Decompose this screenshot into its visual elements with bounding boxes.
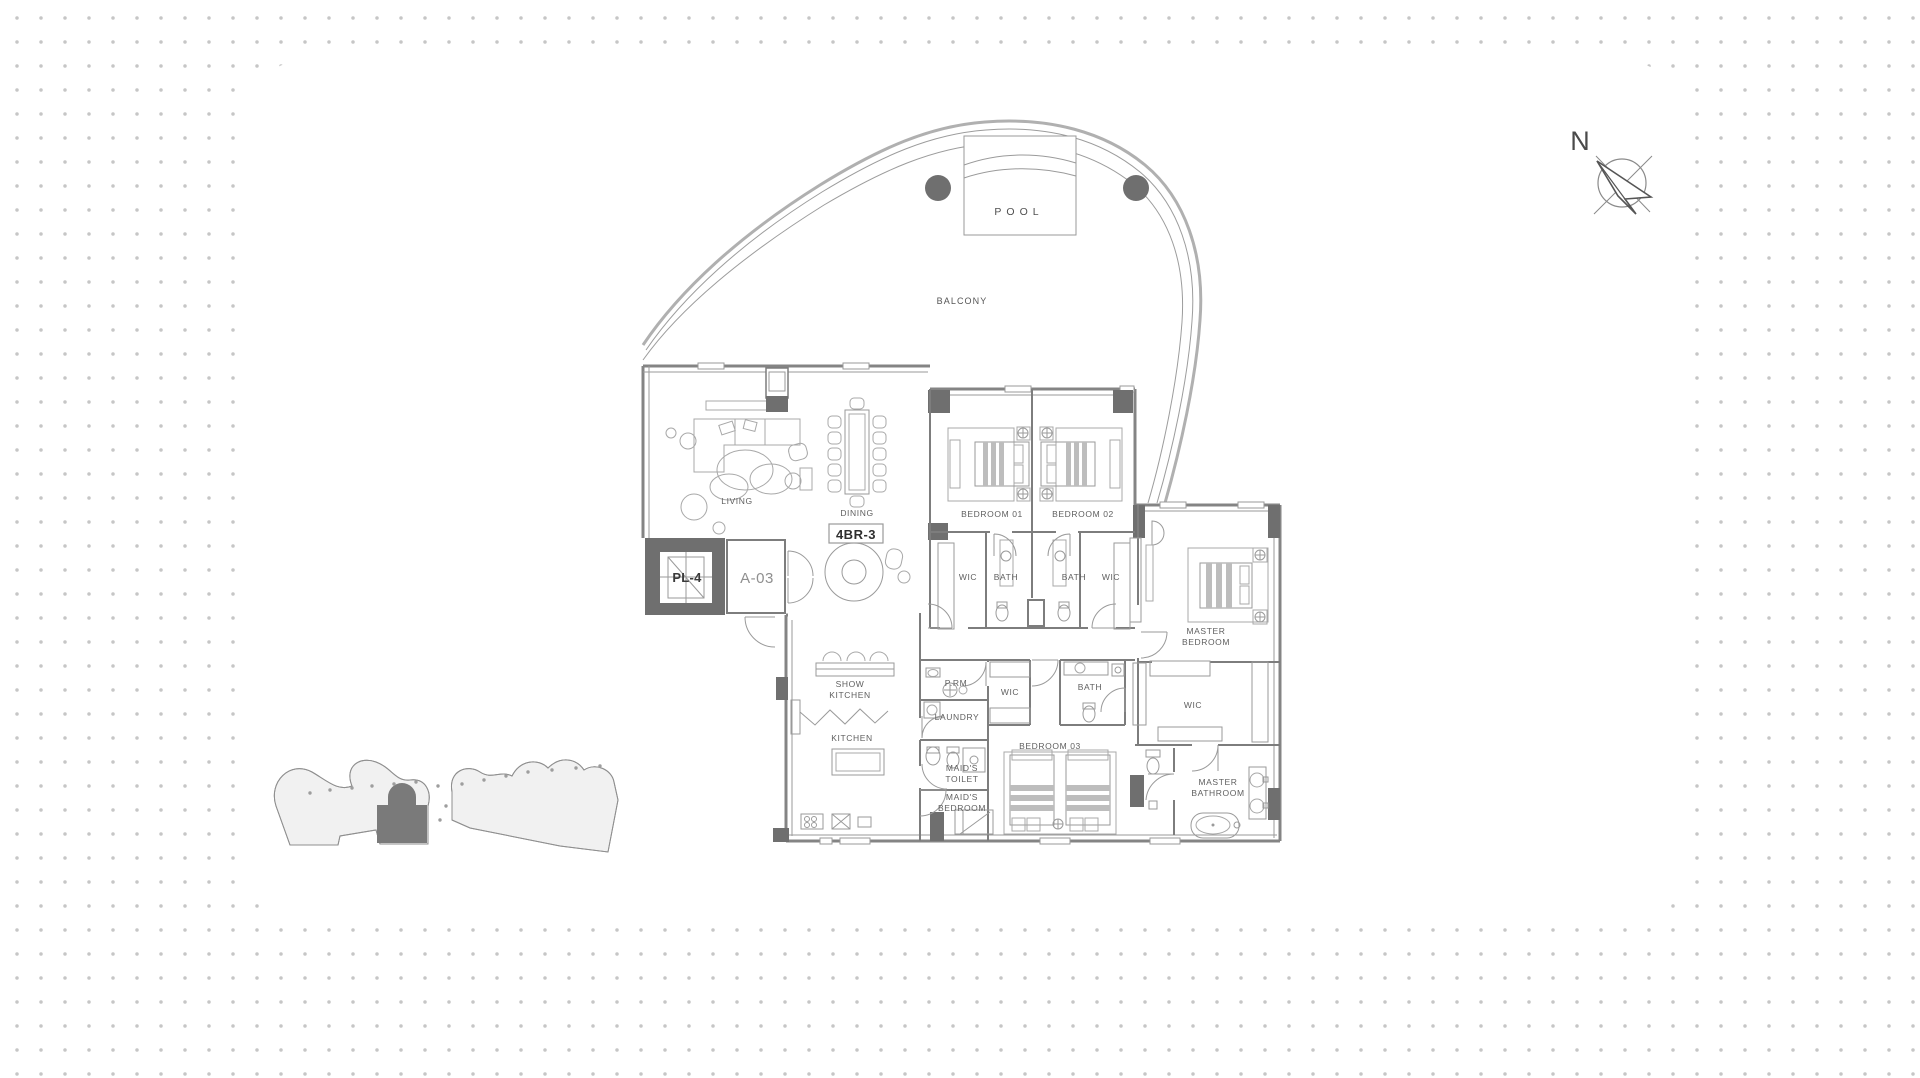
balcony-door (766, 368, 788, 412)
label-dining: DINING (840, 508, 873, 518)
label-wic-bedroom01: WIC (959, 572, 977, 582)
label-bath-bedroom01: BATH (994, 572, 1018, 582)
label-bedroom-02: BEDROOM 02 (1052, 509, 1114, 519)
pool-deck-planter-left (925, 175, 951, 201)
label-maids-toilet: MAID'STOILET (945, 763, 978, 784)
label-unit-badge: 4BR-3 (836, 527, 876, 542)
label-north: N (1570, 126, 1590, 156)
label-master-bathroom: MASTERBATHROOM (1191, 777, 1244, 798)
label-bath-bedroom03: BATH (1078, 682, 1102, 692)
label-master-bedroom: MASTERBEDROOM (1182, 626, 1230, 647)
label-laundry: LAUNDRY (935, 712, 980, 722)
label-bedroom-03: BEDROOM 03 (1019, 741, 1081, 751)
label-wic-master: WIC (1184, 700, 1202, 710)
label-kitchen: KITCHEN (831, 733, 873, 743)
label-living: LIVING (721, 496, 752, 506)
label-bedroom-01: BEDROOM 01 (961, 509, 1023, 519)
label-lobby-plate: A-03 (740, 570, 774, 587)
floorplan-page: POOLBALCONYLIVINGDINING4BR-3PL-4A-03BEDR… (0, 0, 1920, 1078)
label-wic-bedroom02: WIC (1102, 572, 1120, 582)
label-elevator-plate: PL-4 (672, 570, 702, 585)
label-balcony: BALCONY (937, 296, 988, 306)
label-powder-room: P.RM (945, 678, 968, 688)
label-pool: POOL (994, 206, 1043, 218)
label-bath-bedroom02: BATH (1062, 572, 1086, 582)
floorplan-canvas: POOLBALCONYLIVINGDINING4BR-3PL-4A-03BEDR… (0, 0, 1920, 1078)
pool-deck-planter-right (1123, 175, 1149, 201)
label-wic-hall: WIC (1001, 687, 1019, 697)
